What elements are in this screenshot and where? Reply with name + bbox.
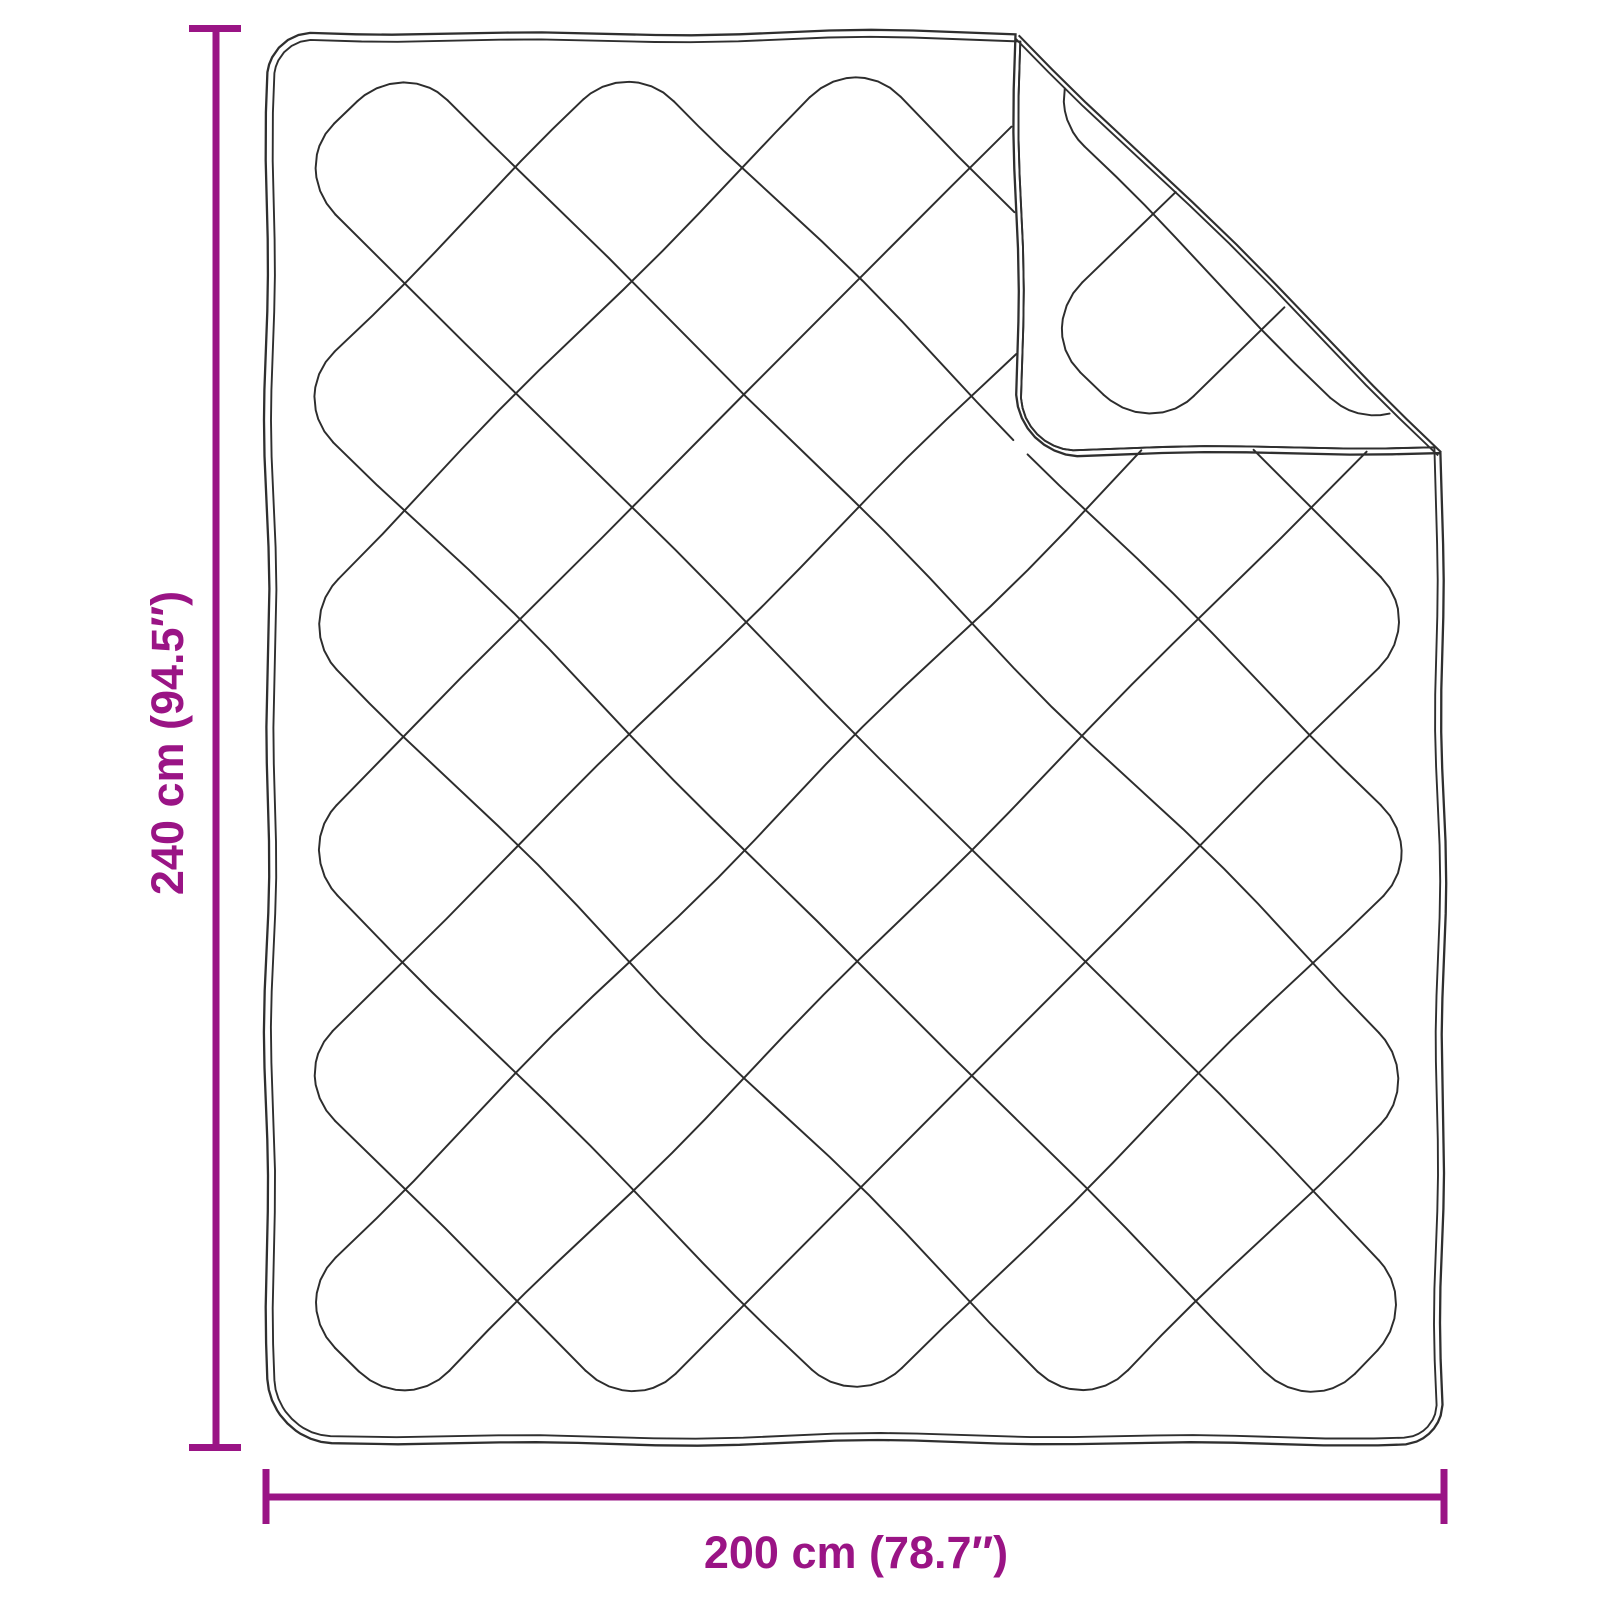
svg-text:200 cm (78.7″): 200 cm (78.7″) [704,1527,1008,1578]
svg-text:240 cm (94.5″): 240 cm (94.5″) [142,591,193,895]
